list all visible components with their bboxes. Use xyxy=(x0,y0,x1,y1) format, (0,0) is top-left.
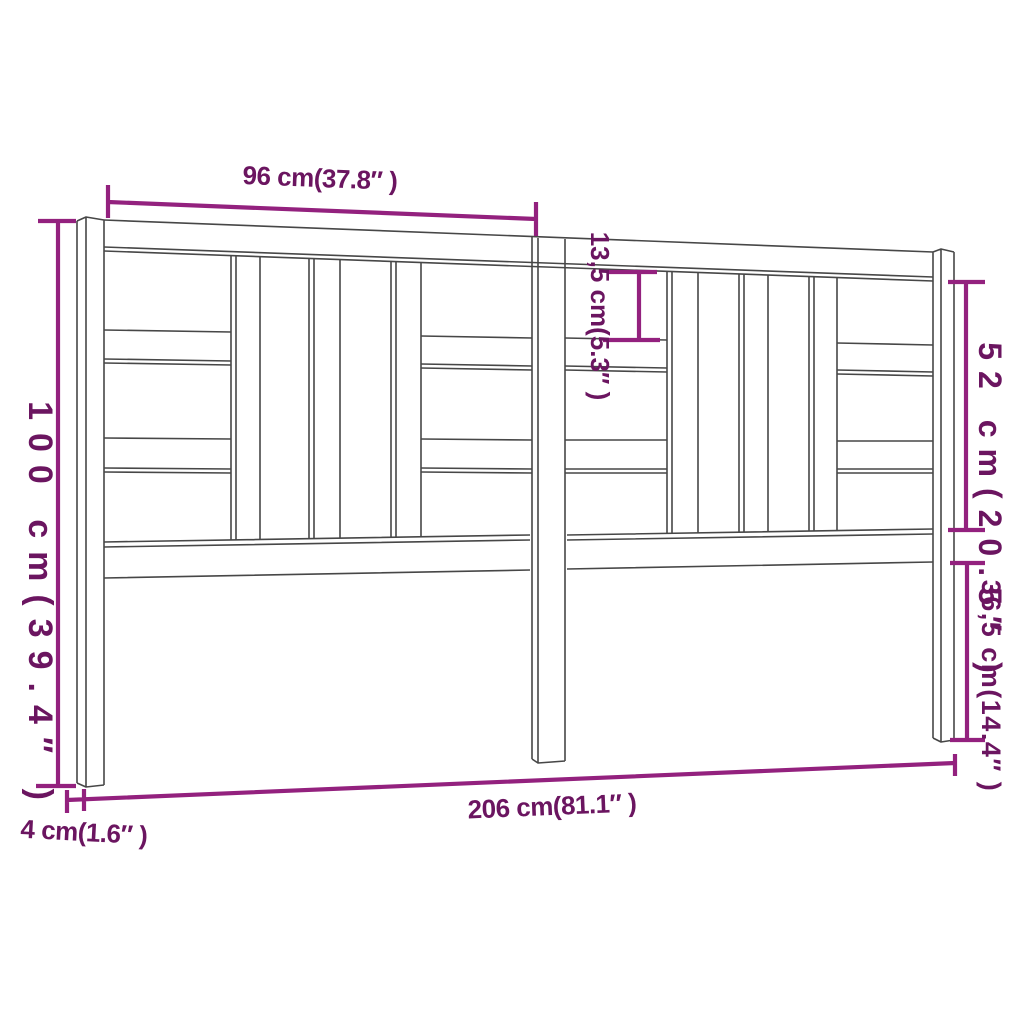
right-post xyxy=(933,249,954,742)
bottom-rail xyxy=(104,529,933,578)
vertical-slats xyxy=(231,256,837,540)
dimension-label: 100 cm(39.4″ ) xyxy=(21,401,59,813)
dimension-label: 13,5 cm(5.3″ ) xyxy=(585,232,615,401)
headboard-drawing xyxy=(77,217,954,787)
dimension-top-gap-height: 13,5 cm(5.3″ ) xyxy=(585,232,660,401)
dimension-label: 96 cm(37.8″ ) xyxy=(242,160,398,196)
left-post xyxy=(77,217,104,787)
dimension-total-height: 100 cm(39.4″ ) xyxy=(21,221,76,813)
dimension-total-width: 206 cm(81.1″ ) xyxy=(67,754,955,825)
dimension-thickness: 4 cm(1.6″ ) xyxy=(20,814,148,851)
headboard-dimension-diagram: 96 cm(37.8″ ) 13,5 cm(5.3″ ) 52 cm(20.5″… xyxy=(0,0,1024,1024)
diagram-canvas: 96 cm(37.8″ ) 13,5 cm(5.3″ ) 52 cm(20.5″… xyxy=(0,0,1024,1024)
dimension-top-section-width: 96 cm(37.8″ ) xyxy=(108,160,536,236)
dimension-label: 36,5 cm(14.4″ ) xyxy=(976,580,1006,793)
center-post xyxy=(532,237,565,763)
dimension-label: 206 cm(81.1″ ) xyxy=(467,787,637,824)
top-rail xyxy=(104,220,933,281)
dimension-leg-section-height: 36,5 cm(14.4″ ) xyxy=(950,563,1006,792)
dimension-label: 4 cm(1.6″ ) xyxy=(20,814,148,851)
